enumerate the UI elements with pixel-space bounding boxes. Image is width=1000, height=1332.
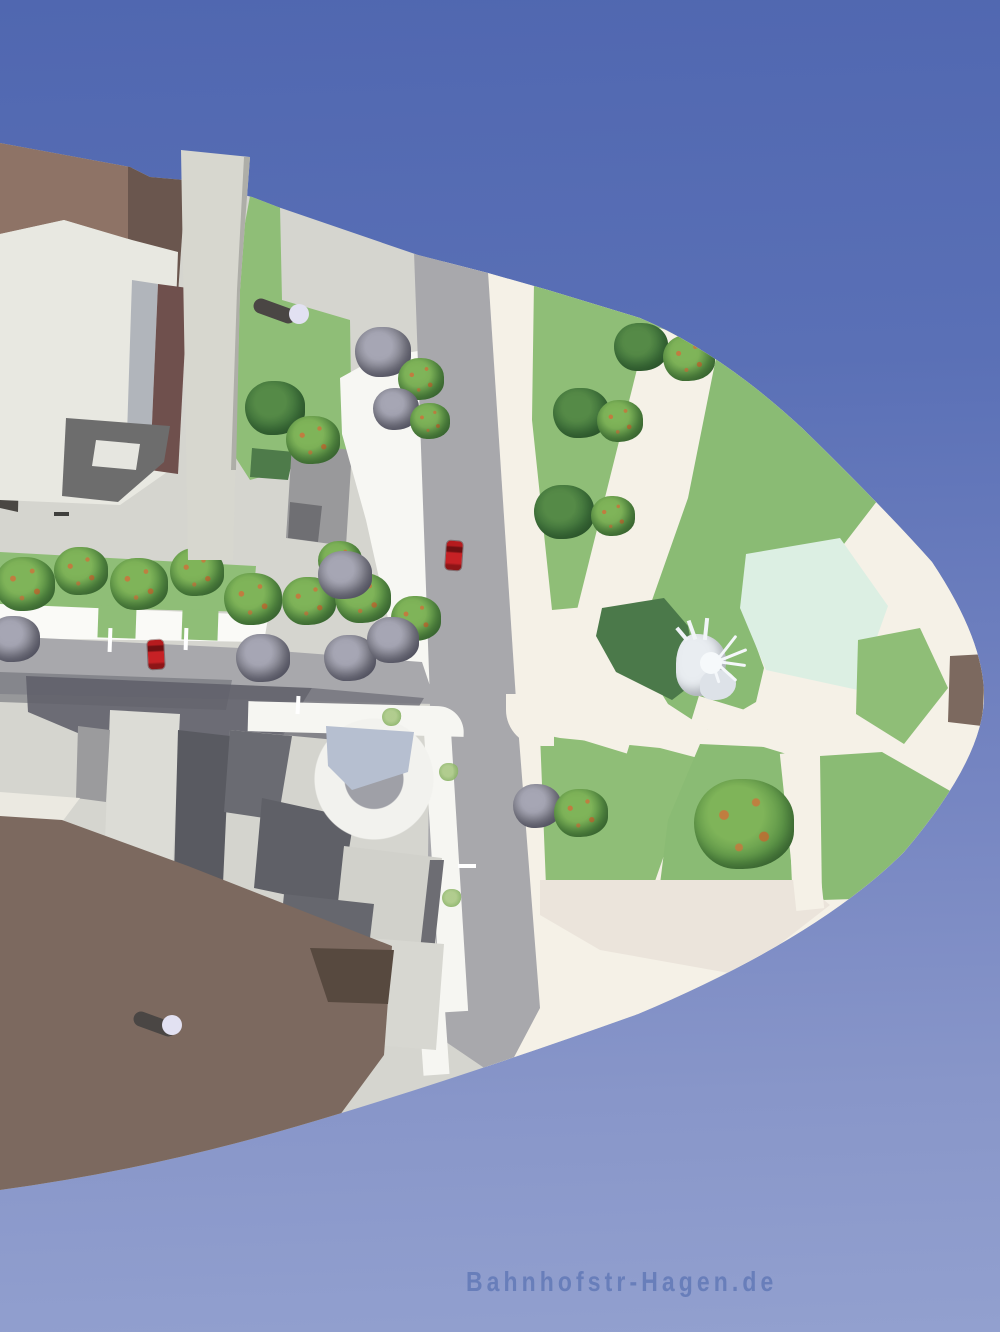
- tree-orange-16: [54, 547, 108, 596]
- car-red-0: [445, 540, 463, 570]
- bush-bush-31: [442, 889, 462, 907]
- bush-bush-30: [439, 763, 459, 781]
- tree-orange-1: [286, 416, 340, 465]
- bush-bush-29: [382, 708, 402, 726]
- scene-object-layer: [0, 0, 1000, 1332]
- aerial-render-canvas: Bahnhofstr-Hagen.de: [0, 0, 1000, 1332]
- tree-orange-14: [694, 779, 794, 869]
- tree-dkgreen-10: [534, 485, 594, 539]
- tree-gray-24: [318, 551, 372, 600]
- tree-gray-27: [367, 617, 419, 664]
- scene-ellipse-mask: [0, 0, 1000, 1332]
- tree-orange-15: [0, 557, 55, 611]
- tree-orange-9: [597, 400, 643, 441]
- tree-orange-7: [663, 335, 715, 382]
- road-marking-1: [458, 864, 476, 868]
- tree-orange-11: [591, 496, 635, 536]
- advertising-pillar-top-0: [289, 304, 309, 324]
- tree-orange-17: [110, 558, 168, 610]
- tree-dkgreen-6: [614, 323, 668, 372]
- car-red-1: [147, 640, 164, 670]
- watermark-text: Bahnhofstr-Hagen.de: [466, 1266, 777, 1298]
- road-marking-3: [184, 628, 189, 650]
- advertising-pillar-top-1: [162, 1015, 182, 1035]
- tree-gray-28: [0, 616, 40, 663]
- tree-orange-13: [554, 789, 608, 838]
- tree-orange-19: [224, 573, 282, 625]
- road-marking-0: [296, 696, 301, 714]
- tree-gray-25: [236, 634, 290, 683]
- road-marking-4: [54, 512, 69, 516]
- tree-orange-5: [410, 403, 450, 439]
- road-marking-2: [108, 628, 113, 652]
